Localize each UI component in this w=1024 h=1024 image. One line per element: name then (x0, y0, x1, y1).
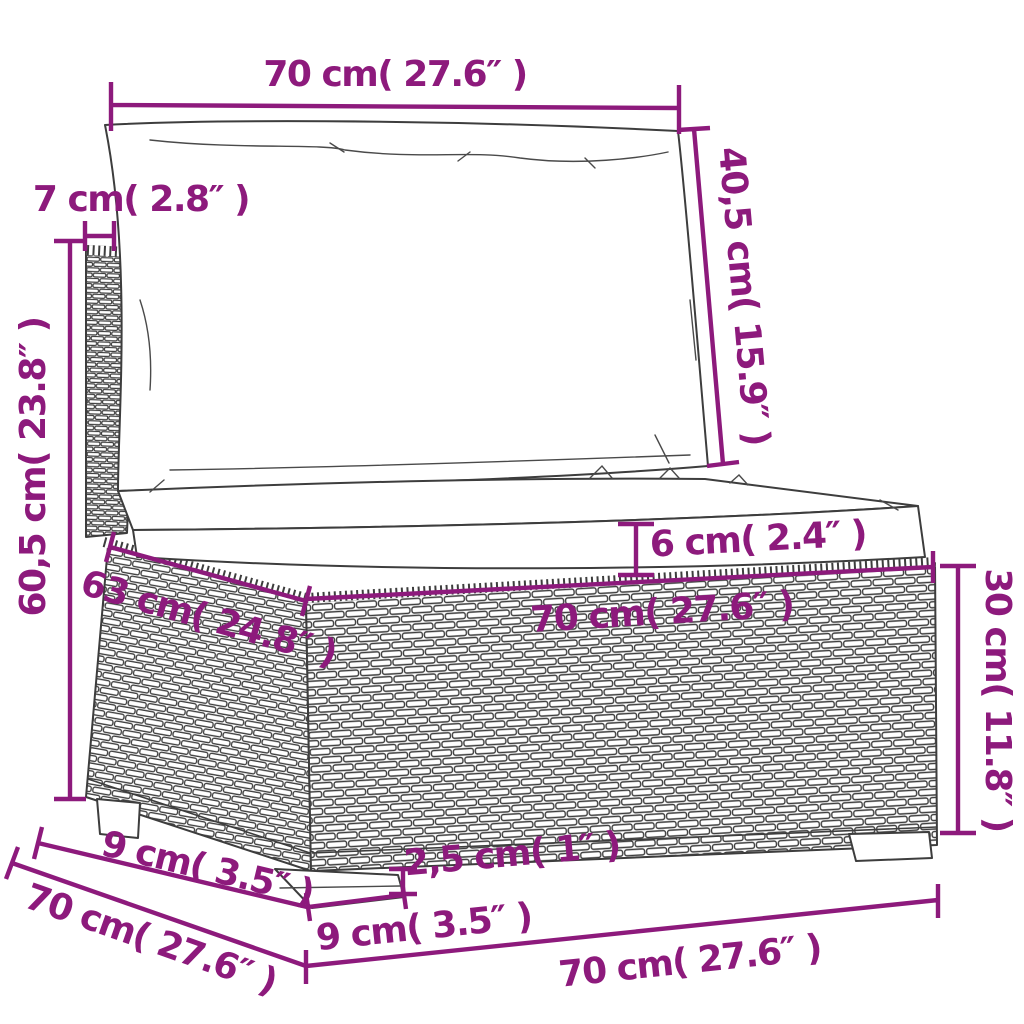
dim-base-height: 30 cm( 11.8″ ) (940, 566, 1018, 833)
dim-overall-height-label: 60,5 cm( 23.8″ ) (13, 317, 54, 616)
dim-back-frame-thickness-label: 7 cm( 2.8″ ) (33, 179, 249, 220)
back-cushion (105, 121, 708, 491)
dim-leg-width-label: 9 cm( 3.5″ ) (314, 896, 533, 959)
diagram-canvas: 70 cm( 27.6″ ) 7 cm( 2.8″ ) 60,5 cm( 23.… (0, 0, 1024, 1024)
dim-overall-height: 60,5 cm( 23.8″ ) (13, 241, 86, 799)
dimension-diagram: 70 cm( 27.6″ ) 7 cm( 2.8″ ) 60,5 cm( 23.… (0, 0, 1024, 1024)
dim-back-cushion-height-label: 40,5 cm( 15.9″ ) (710, 145, 777, 447)
dim-back-width-label: 70 cm( 27.6″ ) (263, 54, 526, 95)
front-right-leg (849, 832, 932, 861)
dim-base-height-label: 30 cm( 11.8″ ) (977, 568, 1018, 831)
